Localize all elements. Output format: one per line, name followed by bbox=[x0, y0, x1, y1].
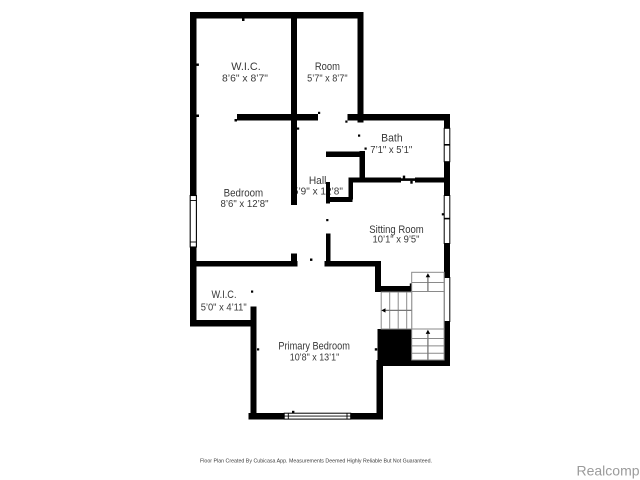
svg-text:W.I.C.: W.I.C. bbox=[231, 61, 261, 73]
svg-text:Realcomp: Realcomp bbox=[577, 463, 640, 479]
svg-text:10’1" x 9’5": 10’1" x 9’5" bbox=[373, 234, 420, 245]
svg-text:Floor Plan Created By Cubicasa: Floor Plan Created By Cubicasa App. Meas… bbox=[200, 459, 432, 465]
svg-text:8’6" x 12’8": 8’6" x 12’8" bbox=[221, 199, 269, 210]
svg-text:7’1" x 5’1": 7’1" x 5’1" bbox=[370, 145, 412, 156]
svg-text:5’9" x 12’8": 5’9" x 12’8" bbox=[293, 187, 343, 198]
svg-text:Room: Room bbox=[315, 61, 340, 73]
svg-text:Bath: Bath bbox=[381, 133, 403, 145]
svg-text:5’0" x 4’11": 5’0" x 4’11" bbox=[201, 303, 247, 314]
svg-text:Hall: Hall bbox=[309, 175, 327, 187]
svg-text:8’6" x 8’7": 8’6" x 8’7" bbox=[222, 74, 268, 85]
svg-text:W.I.C.: W.I.C. bbox=[212, 289, 237, 301]
svg-text:10’8" x 13’1": 10’8" x 13’1" bbox=[290, 353, 340, 364]
svg-text:Bedroom: Bedroom bbox=[224, 188, 264, 200]
svg-text:5’7" x 8’7": 5’7" x 8’7" bbox=[307, 74, 348, 85]
svg-text:Primary Bedroom: Primary Bedroom bbox=[278, 341, 350, 353]
